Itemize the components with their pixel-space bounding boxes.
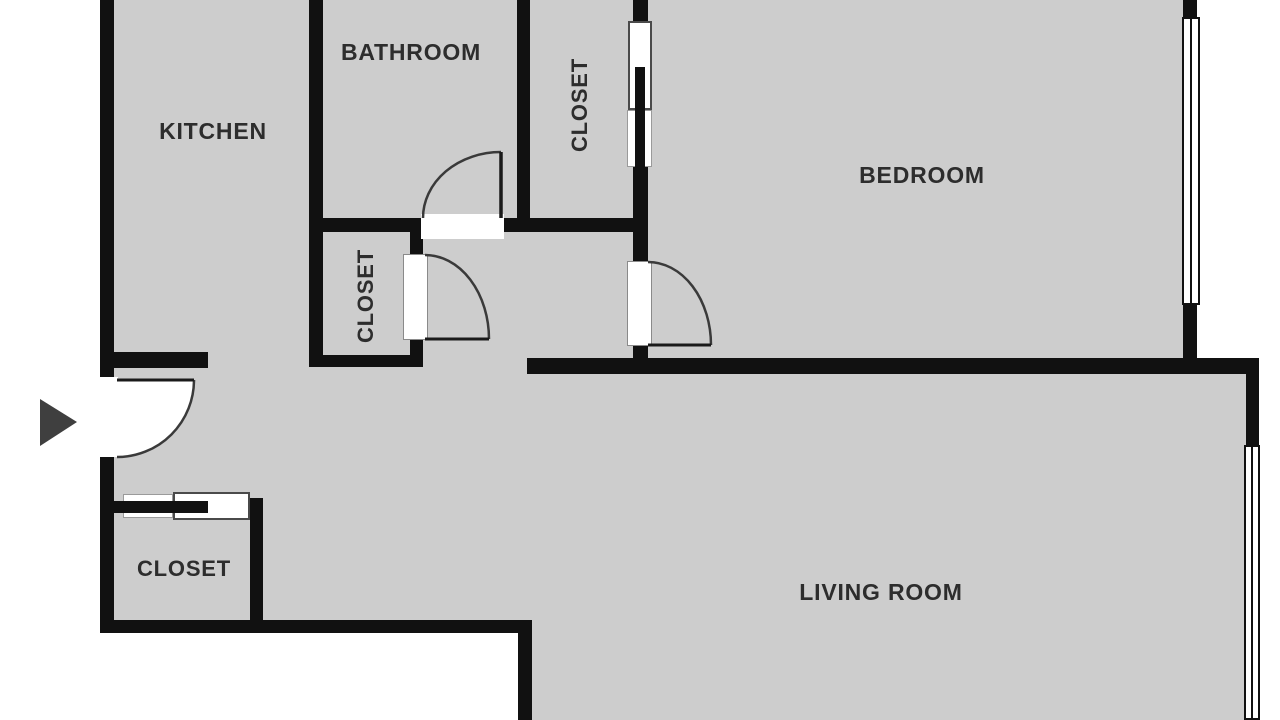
mid-closet-label: CLOSET (353, 176, 379, 416)
entry-closet-label: CLOSET (64, 556, 304, 582)
living-room-label: LIVING ROOM (761, 579, 1001, 605)
floor-plan: KITCHEN BATHROOM CLOSET CLOSET BEDROOM C… (0, 0, 1280, 720)
door-swing-overlay (0, 0, 1280, 720)
entrance-arrow-icon (40, 399, 77, 446)
mid-closet-door-arc (425, 255, 489, 339)
bedroom-door-arc (648, 262, 711, 345)
bathroom-label: BATHROOM (291, 39, 531, 65)
kitchen-label: KITCHEN (93, 118, 333, 144)
top-closet-label: CLOSET (567, 0, 593, 225)
bathroom-door-arc (423, 152, 501, 218)
bedroom-label: BEDROOM (802, 162, 1042, 188)
